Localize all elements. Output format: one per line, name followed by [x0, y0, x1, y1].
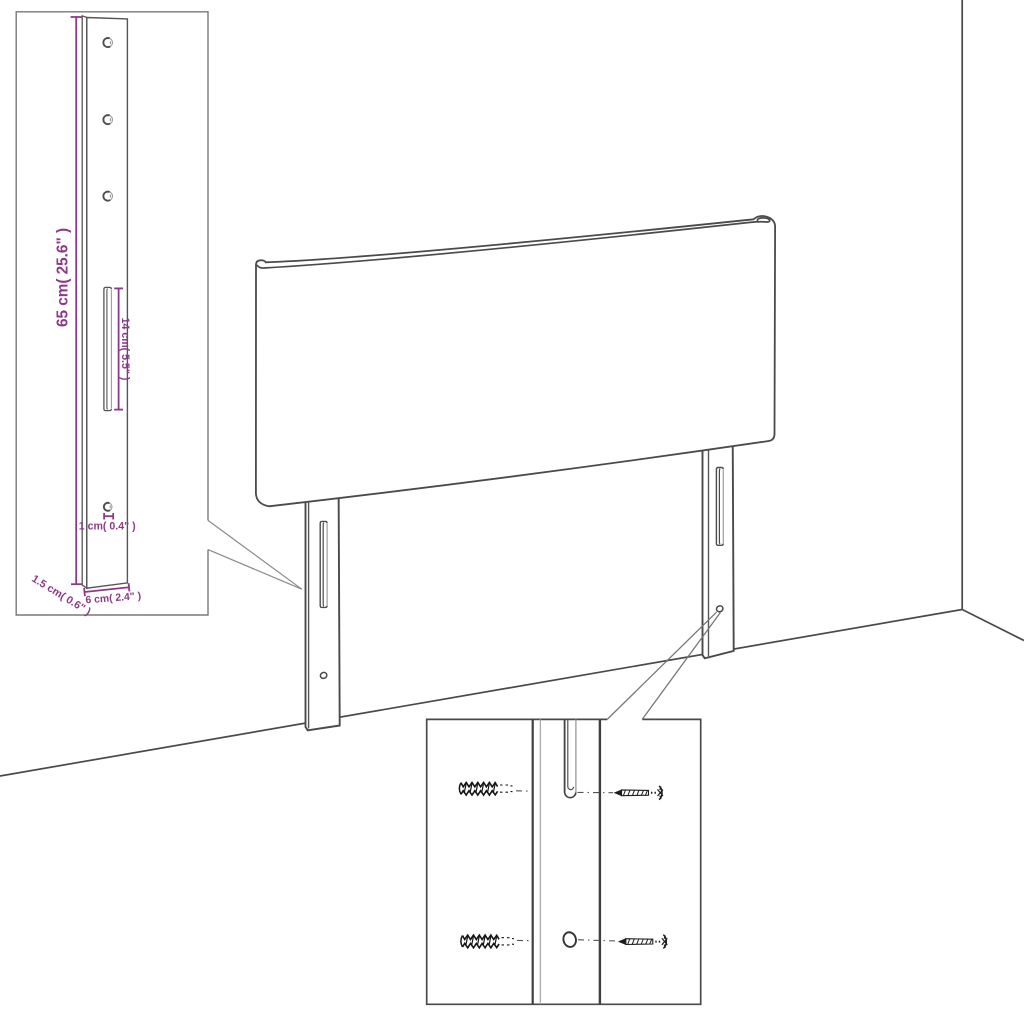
- svg-text:65 cm( 25.6" ): 65 cm( 25.6" ): [54, 228, 71, 327]
- svg-text:1 cm( 0.4" ): 1 cm( 0.4" ): [79, 520, 136, 532]
- svg-text:14 cm( 5.5" ): 14 cm( 5.5" ): [119, 318, 131, 381]
